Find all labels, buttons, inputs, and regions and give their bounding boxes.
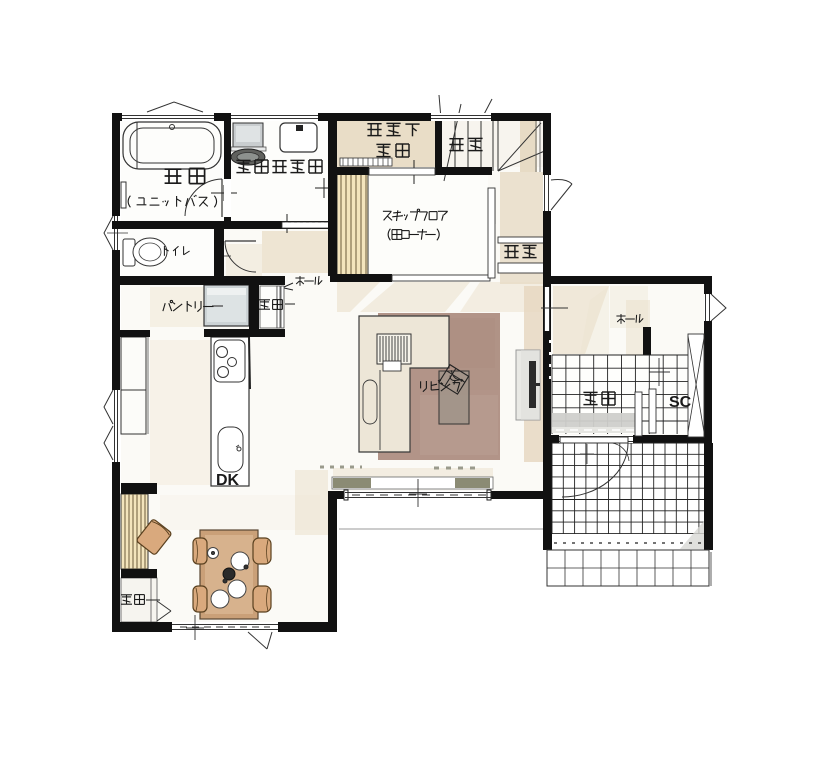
svg-text:DK: DK xyxy=(216,472,240,489)
svg-text:SC: SC xyxy=(669,394,692,411)
